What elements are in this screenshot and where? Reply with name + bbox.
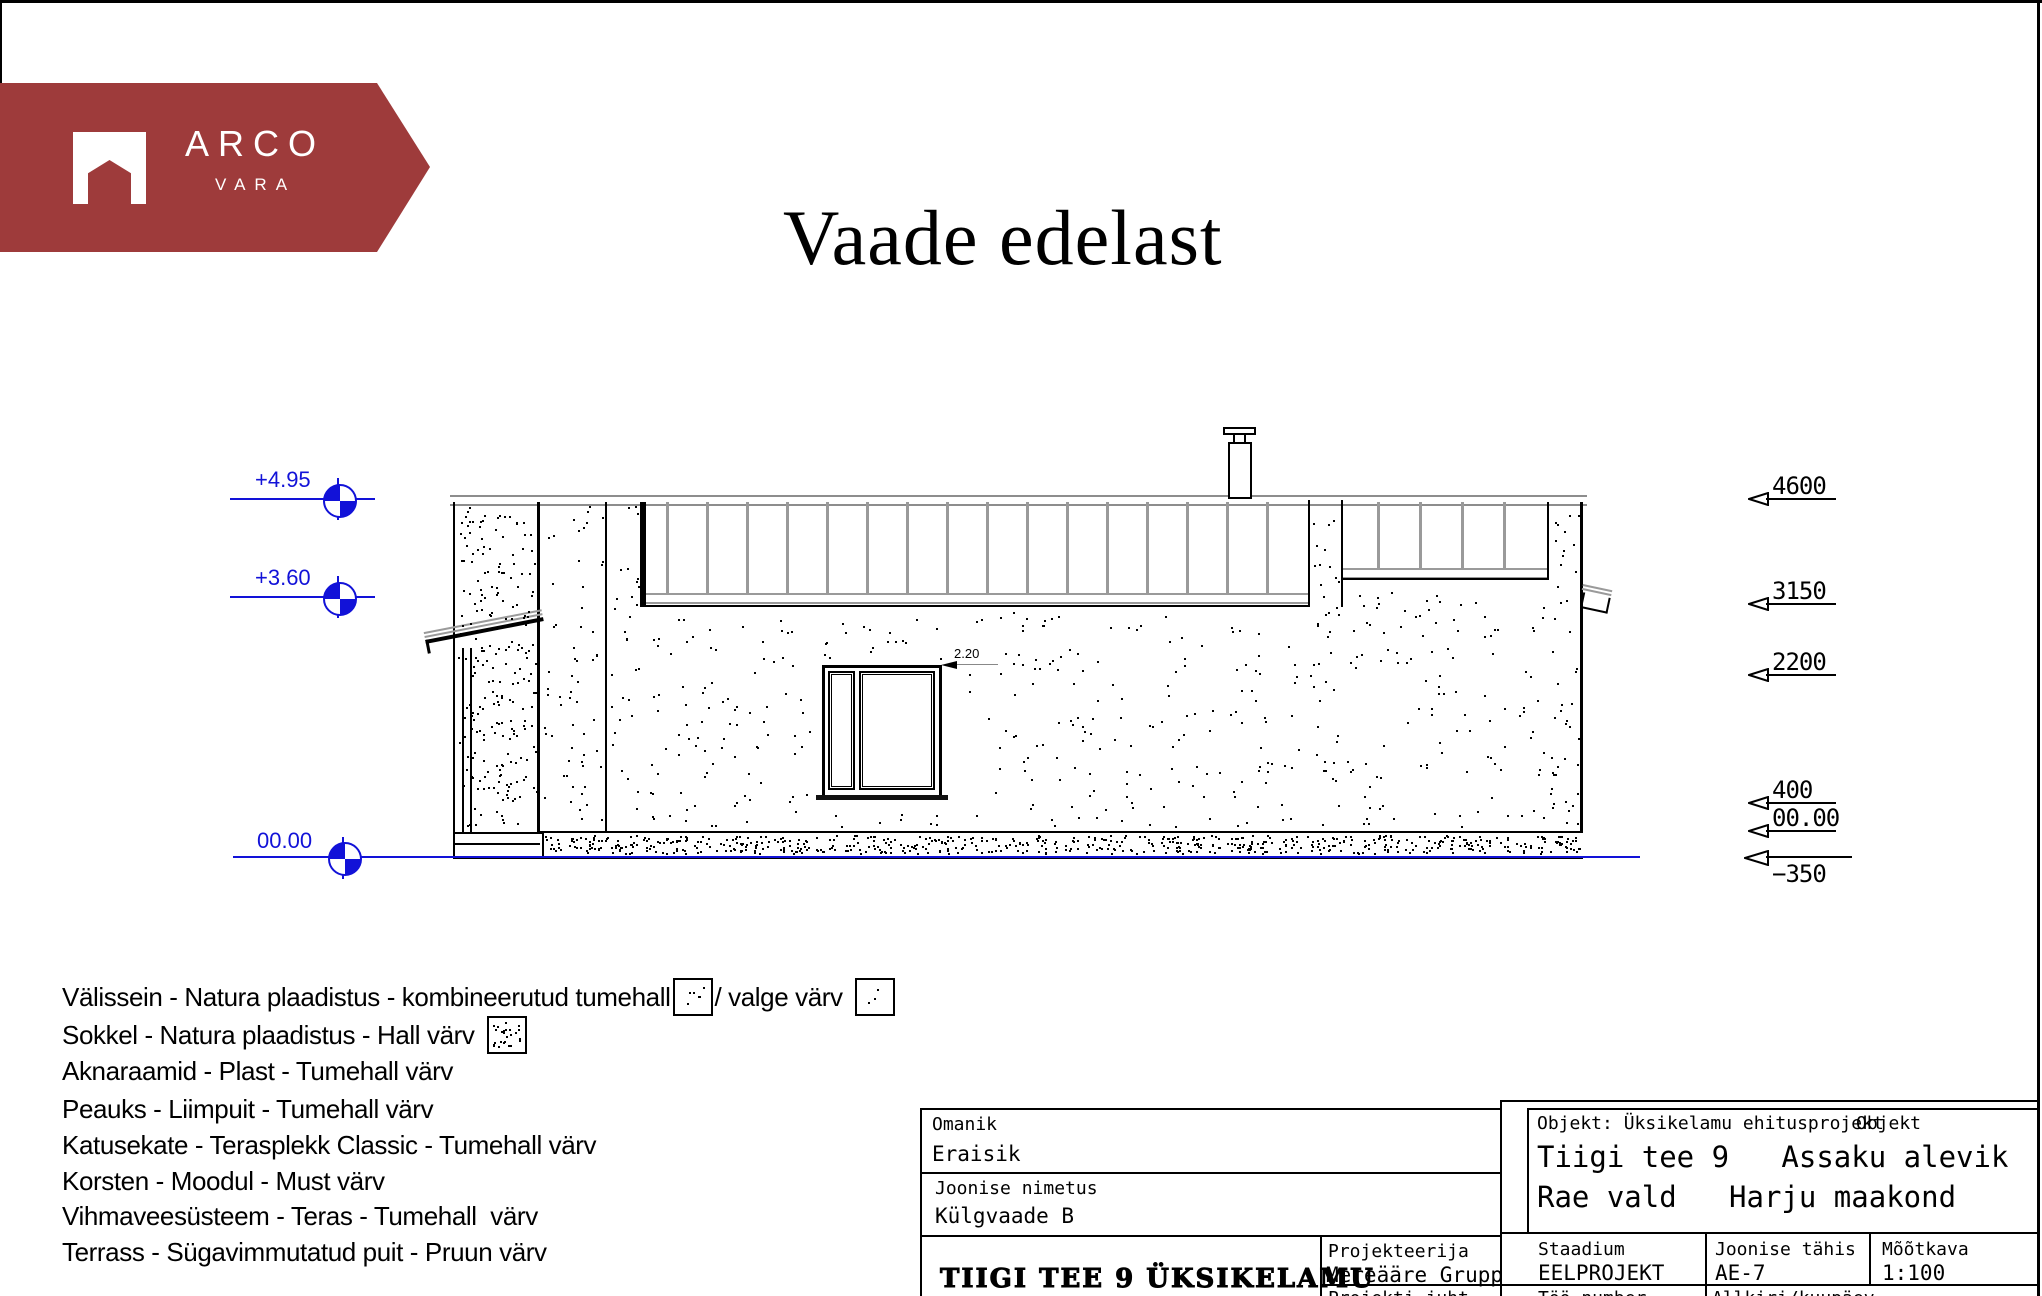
legend-line-4: Peauks - Liimpuit - Tumehall värv bbox=[62, 1094, 433, 1125]
object-label: Objekt: Üksikelamu ehitusprojekt bbox=[1537, 1113, 1884, 1134]
legend-line-3: Aknaraamid - Plast - Tumehall värv bbox=[62, 1056, 453, 1087]
designer-label: Projekteerija bbox=[1328, 1241, 1469, 1262]
scale-label: Mõõtkava bbox=[1882, 1239, 1969, 1260]
owner-value: Eraisik bbox=[932, 1142, 1021, 1166]
designer-value: Mereääre Grupp bbox=[1326, 1263, 1503, 1287]
material-swatch-gray bbox=[487, 1016, 527, 1054]
drawing-name-value: Külgvaade B bbox=[935, 1204, 1074, 1228]
stage-value: EELPROJEKT bbox=[1538, 1261, 1664, 1285]
object-address-2: Rae vald Harju maakond bbox=[1537, 1180, 1956, 1214]
scale-value: 1:100 bbox=[1882, 1261, 1945, 1285]
drawing-code-value: AE-7 bbox=[1715, 1261, 1766, 1285]
benchmark-icon bbox=[323, 484, 357, 518]
legend-line-2: Sokkel - Natura plaadistus - Hall värv bbox=[62, 1016, 529, 1054]
arrow-left-icon bbox=[1744, 850, 1770, 866]
legend-line-8: Terrass - Sügavimmutatud puit - Pruun vä… bbox=[62, 1237, 547, 1268]
signature-label: Allkiri/kuupäev bbox=[1712, 1288, 1875, 1296]
work-number-label: Töö number bbox=[1538, 1288, 1646, 1296]
drawing-code-label: Joonise tähis bbox=[1715, 1239, 1856, 1260]
object-label-ghost: Objekt bbox=[1856, 1113, 1921, 1134]
project-title: TIIGI TEE 9 ÜKSIKELAMU bbox=[940, 1264, 1375, 1294]
project-manager-label: Projekti juht bbox=[1328, 1288, 1469, 1296]
benchmark-icon bbox=[328, 842, 362, 876]
material-swatch-white bbox=[855, 978, 895, 1016]
legend-line-7: Vihmaveesüsteem - Teras - Tumehall värv bbox=[62, 1201, 538, 1232]
drawing-sheet: ARCO VARA Vaade edelast bbox=[0, 0, 2042, 1296]
stage-label: Staadium bbox=[1538, 1239, 1625, 1260]
benchmark-icon bbox=[323, 582, 357, 616]
legend-line-5: Katusekate - Terasplekk Classic - Tumeha… bbox=[62, 1130, 596, 1161]
owner-label: Omanik bbox=[932, 1114, 997, 1135]
drawing-name-label: Joonise nimetus bbox=[935, 1178, 1098, 1199]
material-swatch-dark bbox=[673, 978, 713, 1016]
legend-line-6: Korsten - Moodul - Must värv bbox=[62, 1166, 385, 1197]
object-address-1: Tiigi tee 9 Assaku alevik bbox=[1537, 1140, 2008, 1174]
legend-line-1: Välissein - Natura plaadistus - kombinee… bbox=[62, 978, 897, 1016]
